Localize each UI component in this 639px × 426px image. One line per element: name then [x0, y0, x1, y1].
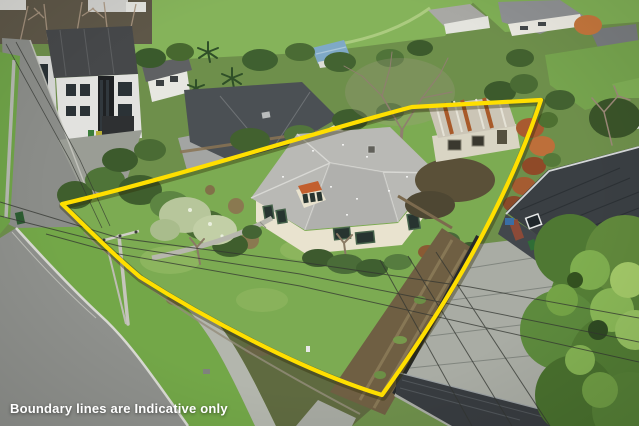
chimney [368, 146, 375, 153]
drain-cover [203, 369, 210, 374]
autumn-orange-tree [574, 15, 602, 35]
letterbox [306, 346, 310, 352]
aerial-photo: Boundary lines are Indicative only [0, 0, 639, 426]
garden-patch [228, 198, 244, 214]
boundary-disclaimer-text: Boundary lines are Indicative only [10, 401, 228, 416]
aerial-photo-canvas [0, 0, 639, 426]
blue-bin [505, 218, 514, 225]
large-green-tree [520, 214, 639, 426]
